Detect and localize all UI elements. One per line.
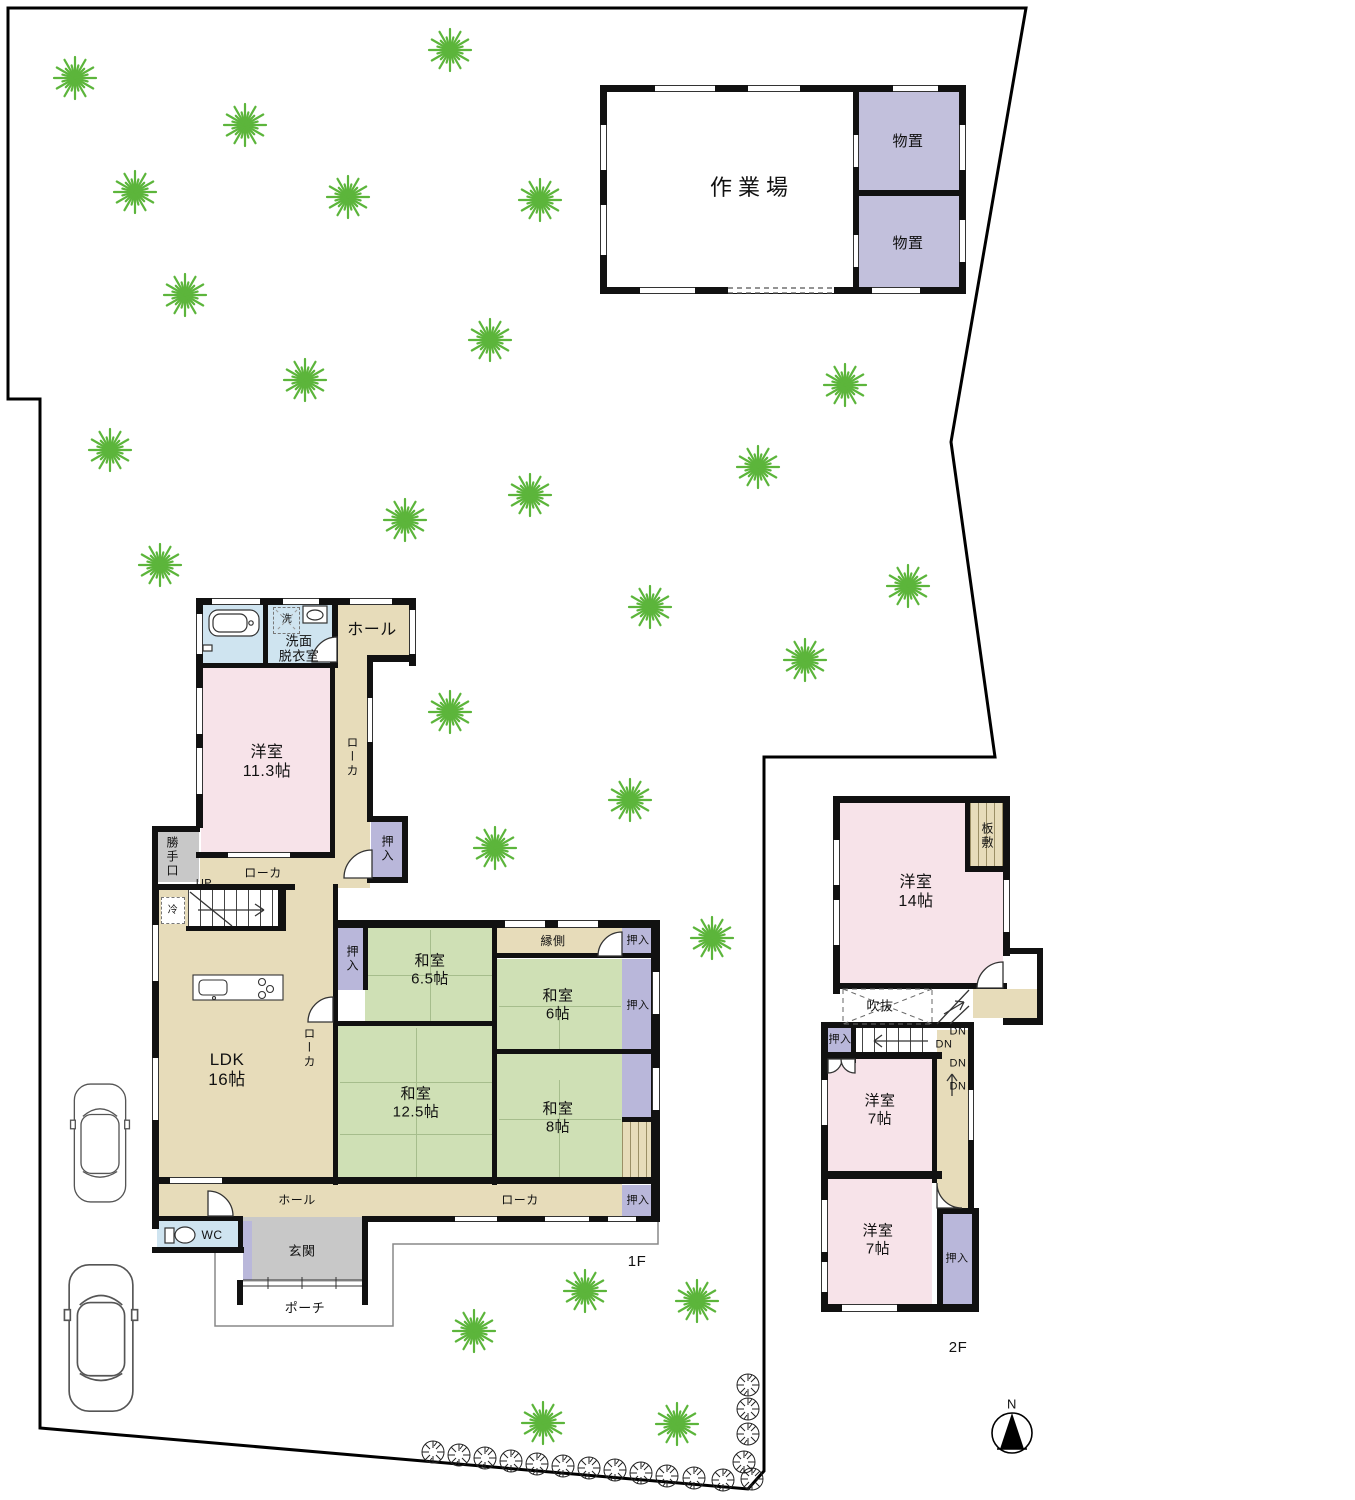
shrub-icon <box>448 1444 470 1466</box>
window <box>893 85 938 92</box>
car-icon <box>64 1265 137 1411</box>
itajiki-label: 板敷 <box>981 822 993 850</box>
tree-icon <box>676 1280 718 1322</box>
wall <box>152 826 200 832</box>
window <box>872 287 920 294</box>
shrub-icon <box>604 1459 626 1481</box>
tree-icon <box>691 917 733 959</box>
wall <box>600 85 607 294</box>
washitsu8-label: 和室 8帖 <box>542 1100 573 1135</box>
wall <box>332 598 338 668</box>
tree-icon <box>54 57 96 99</box>
window <box>640 287 695 294</box>
dn-label: DN <box>950 1026 967 1039</box>
tree-icon <box>224 104 266 146</box>
wall <box>833 796 840 994</box>
washitsu65-label: 和室 6.5帖 <box>411 952 449 987</box>
stairs-1f <box>188 890 278 926</box>
oshiire-label: 押入 <box>627 1000 650 1013</box>
floorplan-canvas: 作業場 物置 物置 ホール 洗面 脱衣室 洗 洋室 11.3帖 ローカ 勝手口 … <box>0 0 1355 1500</box>
wc-room <box>157 1220 238 1250</box>
wall <box>263 600 268 666</box>
wall <box>853 190 965 196</box>
wall <box>833 983 1007 989</box>
window <box>652 972 660 1014</box>
genkan-strip <box>243 1221 252 1280</box>
wall <box>363 928 368 990</box>
window <box>853 235 859 267</box>
tree-icon <box>564 1270 606 1312</box>
shrub-icon <box>737 1374 759 1396</box>
wall <box>367 877 408 883</box>
wall <box>821 1171 942 1179</box>
window <box>748 85 800 92</box>
window <box>350 598 392 605</box>
stairs-2f-upper <box>937 989 968 1024</box>
katteguchi-label: 勝手口 <box>166 836 178 878</box>
fridge-label: 冷 <box>168 905 179 917</box>
window <box>655 85 715 92</box>
oshiire-label: 押入 <box>346 945 358 973</box>
tree-icon <box>656 1403 698 1445</box>
shrub-icon <box>712 1469 734 1491</box>
window <box>821 1262 828 1292</box>
tree-icon <box>824 364 866 406</box>
genkan-label: 玄関 <box>288 1243 315 1258</box>
wall <box>238 1216 243 1253</box>
workshop-label: 作業場 <box>710 175 794 201</box>
hall-top-label: ホール <box>347 622 397 641</box>
floor2-label: 2F <box>949 1339 968 1357</box>
tree-icon <box>629 586 671 628</box>
shrub-icon <box>422 1441 444 1463</box>
wall <box>278 890 286 930</box>
window <box>833 840 840 885</box>
window <box>1003 880 1010 932</box>
storage-label: 物置 <box>892 235 923 253</box>
landing-2f <box>973 989 1037 1018</box>
window <box>558 920 598 928</box>
tree-icon <box>384 499 426 541</box>
shrub-icon <box>656 1465 678 1487</box>
compass-north-label: N <box>1007 1396 1017 1411</box>
up-label: UP <box>196 878 212 891</box>
wall <box>362 1216 368 1282</box>
window <box>196 748 203 794</box>
wall <box>932 1052 937 1183</box>
wall <box>965 801 970 871</box>
tree-icon <box>737 446 779 488</box>
yoshitsu7b-label: 洋室 7帖 <box>862 1222 893 1257</box>
window <box>652 1068 660 1110</box>
shrubs-group <box>422 1374 763 1491</box>
window <box>959 220 966 262</box>
yoshitsu113-label: 洋室 11.3帖 <box>243 744 291 782</box>
tree-icon <box>429 29 471 71</box>
window <box>228 852 290 858</box>
window <box>409 610 416 654</box>
window <box>833 900 840 945</box>
window <box>196 688 203 734</box>
tree-icon <box>887 565 929 607</box>
wall <box>492 1049 658 1054</box>
oshiire-label: 押入 <box>627 1195 650 1208</box>
wall <box>152 1247 244 1253</box>
compass-icon <box>992 1413 1032 1453</box>
yoshitsu14-label: 洋室 14帖 <box>898 874 933 912</box>
shrub-icon <box>733 1451 755 1473</box>
wall <box>937 1208 943 1308</box>
tree-icon <box>474 827 516 869</box>
hall-bottom-label: ホール <box>278 1193 316 1207</box>
window <box>608 1216 636 1222</box>
dn-label: DN <box>936 1039 953 1052</box>
window <box>152 1058 159 1120</box>
window <box>152 925 159 981</box>
oshiire-label: 押入 <box>381 835 393 863</box>
tree-icon <box>519 179 561 221</box>
ldk-label: LDK 16帖 <box>208 1050 245 1090</box>
window <box>821 1200 828 1252</box>
car-icon <box>71 1084 130 1202</box>
tree-icon <box>114 171 156 213</box>
shrub-icon <box>741 1468 763 1490</box>
floor1-label: 1F <box>628 1253 647 1271</box>
shrub-icon <box>737 1423 759 1445</box>
oshiire-label: 押入 <box>627 935 650 948</box>
shrub-icon <box>526 1453 548 1475</box>
wc-label: WC <box>202 1228 223 1242</box>
wall <box>1003 1018 1043 1025</box>
wall <box>362 1280 368 1305</box>
porch-label: ポーチ <box>285 1300 326 1315</box>
hall-bottom <box>157 1183 367 1217</box>
window <box>959 125 966 170</box>
wall <box>367 655 416 662</box>
shrub-icon <box>500 1450 522 1472</box>
shrub-icon <box>578 1457 600 1479</box>
tree-icon <box>164 274 206 316</box>
window <box>842 1304 897 1312</box>
wall <box>821 1052 942 1059</box>
tree-icon <box>509 474 551 516</box>
wall <box>330 662 335 858</box>
shrub-icon <box>683 1467 705 1489</box>
wall <box>152 1216 243 1221</box>
wall <box>402 816 408 883</box>
wall <box>1037 948 1043 1025</box>
window <box>455 1216 497 1222</box>
fukinuke-label: 吹抜 <box>866 998 893 1013</box>
tree-icon <box>522 1402 564 1444</box>
tree-icon <box>453 1310 495 1352</box>
washitsu125-label: 和室 12.5帖 <box>393 1085 440 1120</box>
tree-icon <box>609 779 651 821</box>
rouka-label: ローカ <box>346 736 358 778</box>
window <box>853 135 859 167</box>
window <box>505 920 545 928</box>
dn-label: DN <box>950 1081 967 1094</box>
tree-icon <box>784 639 826 681</box>
rouka-label: ローカ <box>244 866 282 880</box>
dn-label: DN <box>950 1058 967 1071</box>
yoshitsu7a-label: 洋室 7帖 <box>864 1092 895 1127</box>
oshiire-label: 押入 <box>946 1253 969 1266</box>
window <box>196 614 203 654</box>
wall <box>237 1280 243 1305</box>
tree-icon <box>469 319 511 361</box>
wall <box>367 662 373 822</box>
stairs-2f-lower <box>862 1028 932 1052</box>
storage-label: 物置 <box>892 133 923 151</box>
wall <box>972 1208 979 1308</box>
corridor-bottom <box>367 1183 622 1217</box>
window <box>283 598 319 605</box>
shrub-icon <box>737 1398 759 1420</box>
wall <box>159 884 295 890</box>
rouka-label: ローカ <box>501 1193 539 1207</box>
window <box>968 1090 974 1140</box>
window <box>170 1177 222 1184</box>
wall <box>1003 796 1010 956</box>
wall <box>622 1117 654 1122</box>
window <box>212 598 260 605</box>
window <box>821 1080 828 1125</box>
laundry-label: 洗 <box>282 614 293 626</box>
tree-icon <box>139 544 181 586</box>
tree-icon <box>284 359 326 401</box>
shrub-icon <box>630 1462 652 1484</box>
window <box>600 205 607 255</box>
closet-unlabeled <box>622 1054 654 1120</box>
engawa-label: 縁側 <box>540 934 565 948</box>
tree-icon <box>89 429 131 471</box>
tree-icon <box>327 176 369 218</box>
window <box>600 125 607 170</box>
window <box>545 1216 589 1222</box>
wall <box>333 884 338 1185</box>
oshiire-label: 押入 <box>829 1034 852 1047</box>
washitsu6-label: 和室 6帖 <box>542 987 573 1022</box>
window <box>367 698 373 742</box>
wall <box>152 1177 658 1184</box>
shrub-icon <box>552 1455 574 1477</box>
wall <box>186 926 286 931</box>
veranda-strip <box>622 1121 654 1180</box>
wall <box>497 953 658 958</box>
tree-icon <box>429 691 471 733</box>
shrub-icon <box>474 1447 496 1469</box>
washroom-label: 洗面 脱衣室 <box>279 634 320 665</box>
wall <box>333 1021 497 1026</box>
wall <box>965 866 1010 872</box>
rouka-label: ローカ <box>303 1027 315 1069</box>
bathroom <box>200 602 270 668</box>
wall <box>833 796 1010 803</box>
wall <box>152 826 158 888</box>
